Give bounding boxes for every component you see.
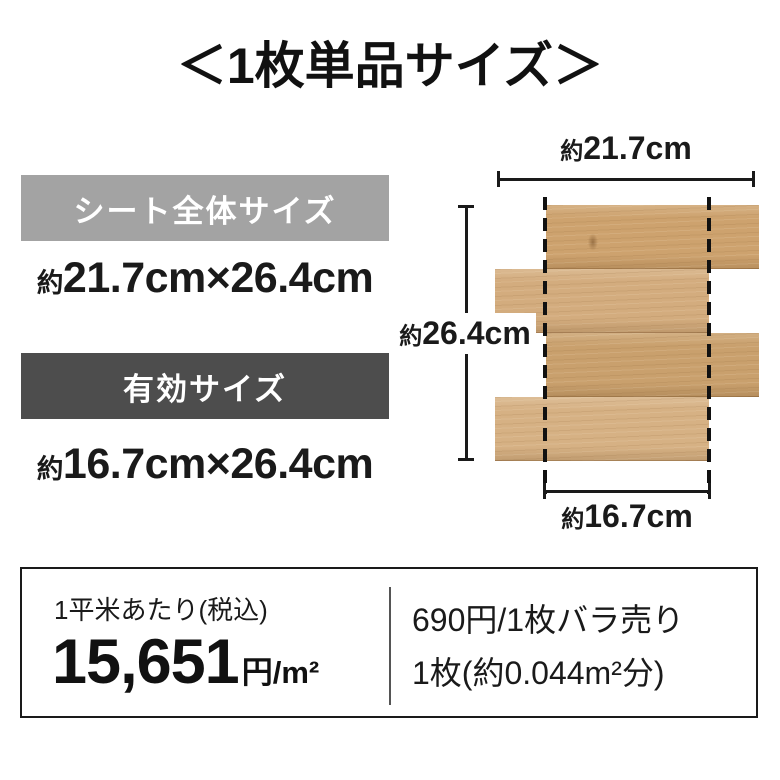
height-dimension-label: 約26.4cm bbox=[394, 313, 536, 354]
effective-width-dimension-line bbox=[543, 483, 711, 499]
cut-line-left bbox=[543, 197, 547, 494]
sheet-size-value: 約21.7cm×26.4cm bbox=[21, 254, 389, 303]
width-dimension-line bbox=[497, 171, 755, 187]
price-per-piece-line2: 1枚(約0.044m²分) bbox=[412, 654, 756, 692]
effective-size-approx: 約 bbox=[37, 454, 63, 484]
effective-size-badge: 有効サイズ bbox=[21, 353, 389, 419]
effective-size-value: 約16.7cm×26.4cm bbox=[21, 440, 389, 489]
price-box-divider bbox=[389, 587, 391, 705]
cut-line-right bbox=[707, 197, 711, 494]
effective-width-dimension-label: 約16.7cm bbox=[527, 499, 727, 534]
wood-plank-row3 bbox=[546, 333, 759, 397]
width-dimension-label: 約21.7cm bbox=[497, 131, 755, 166]
height-value: 26.4cm bbox=[422, 315, 531, 351]
wood-plank-row1 bbox=[546, 205, 759, 269]
price-per-piece-line1: 690円/1枚バラ売り bbox=[412, 601, 756, 639]
sheet-size-approx: 約 bbox=[37, 268, 63, 298]
price-per-sqm-caption: 1平米あたり(税込) bbox=[54, 590, 268, 627]
width-value: 21.7cm bbox=[583, 130, 692, 166]
effective-width-value: 16.7cm bbox=[584, 498, 693, 534]
height-approx: 約 bbox=[399, 323, 422, 349]
sheet-size-badge: シート全体サイズ bbox=[21, 175, 389, 241]
sheet-size-badge-label: シート全体サイズ bbox=[73, 186, 336, 231]
sheet-size-dimensions: 21.7cm×26.4cm bbox=[63, 254, 373, 302]
price-per-sqm-unit: 円/m² bbox=[242, 647, 320, 692]
effective-size-dimensions: 16.7cm×26.4cm bbox=[63, 440, 373, 488]
price-per-sqm: 15,651 円/m² bbox=[52, 631, 319, 694]
price-box: 1平米あたり(税込) 15,651 円/m² 690円/1枚バラ売り 1枚(約0… bbox=[20, 567, 758, 718]
price-per-sqm-amount: 15,651 bbox=[52, 631, 239, 694]
effective-size-badge-label: 有効サイズ bbox=[123, 364, 287, 409]
price-per-piece: 690円/1枚バラ売り 1枚(約0.044m²分) bbox=[412, 573, 756, 720]
width-approx: 約 bbox=[560, 138, 583, 164]
effective-width-approx: 約 bbox=[561, 506, 584, 532]
page-title: ＜1枚単品サイズ＞ bbox=[0, 38, 780, 96]
product-size-infographic: ＜1枚単品サイズ＞ シート全体サイズ 約21.7cm×26.4cm 有効サイズ … bbox=[0, 0, 780, 780]
wood-plank-row4 bbox=[495, 397, 709, 461]
